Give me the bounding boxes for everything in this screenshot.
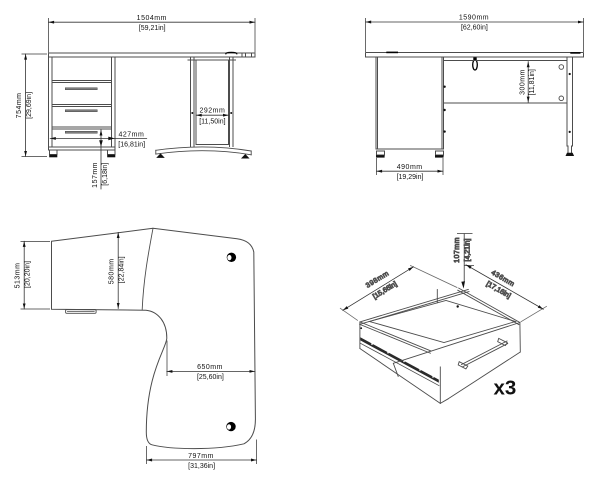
svg-text:107mm: 107mm xyxy=(454,237,461,263)
svg-text:1504mm: 1504mm xyxy=(137,15,167,22)
svg-text:[22,84in]: [22,84in] xyxy=(118,256,125,283)
svg-text:[11,50in]: [11,50in] xyxy=(199,118,225,125)
svg-text:[25,60in]: [25,60in] xyxy=(197,374,224,381)
svg-text:754mm: 754mm xyxy=(16,92,23,118)
svg-text:[11,81in]: [11,81in] xyxy=(529,69,536,95)
svg-text:[29,69in]: [29,69in] xyxy=(26,92,33,119)
svg-text:580mm: 580mm xyxy=(108,258,115,284)
svg-text:513mm: 513mm xyxy=(15,263,22,289)
svg-text:[16,81in]: [16,81in] xyxy=(118,142,145,149)
svg-text:797mm: 797mm xyxy=(188,453,214,460)
svg-text:[62,60in]: [62,60in] xyxy=(461,25,488,32)
svg-text:650mm: 650mm xyxy=(197,364,223,371)
svg-text:300mm: 300mm xyxy=(519,69,526,95)
svg-text:[4,21in]: [4,21in] xyxy=(465,238,472,261)
svg-text:1590mm: 1590mm xyxy=(459,15,489,22)
svg-text:[31,36in]: [31,36in] xyxy=(188,463,215,470)
svg-text:292mm: 292mm xyxy=(199,108,225,115)
svg-text:x3: x3 xyxy=(494,377,517,400)
svg-text:157mm: 157mm xyxy=(92,162,99,188)
svg-text:427mm: 427mm xyxy=(118,132,144,139)
svg-text:[20,20in]: [20,20in] xyxy=(25,261,32,288)
svg-text:[6,18in]: [6,18in] xyxy=(102,163,109,186)
svg-text:[59,21in]: [59,21in] xyxy=(139,25,166,32)
svg-text:[19,29in]: [19,29in] xyxy=(397,174,424,181)
svg-text:490mm: 490mm xyxy=(397,164,423,171)
